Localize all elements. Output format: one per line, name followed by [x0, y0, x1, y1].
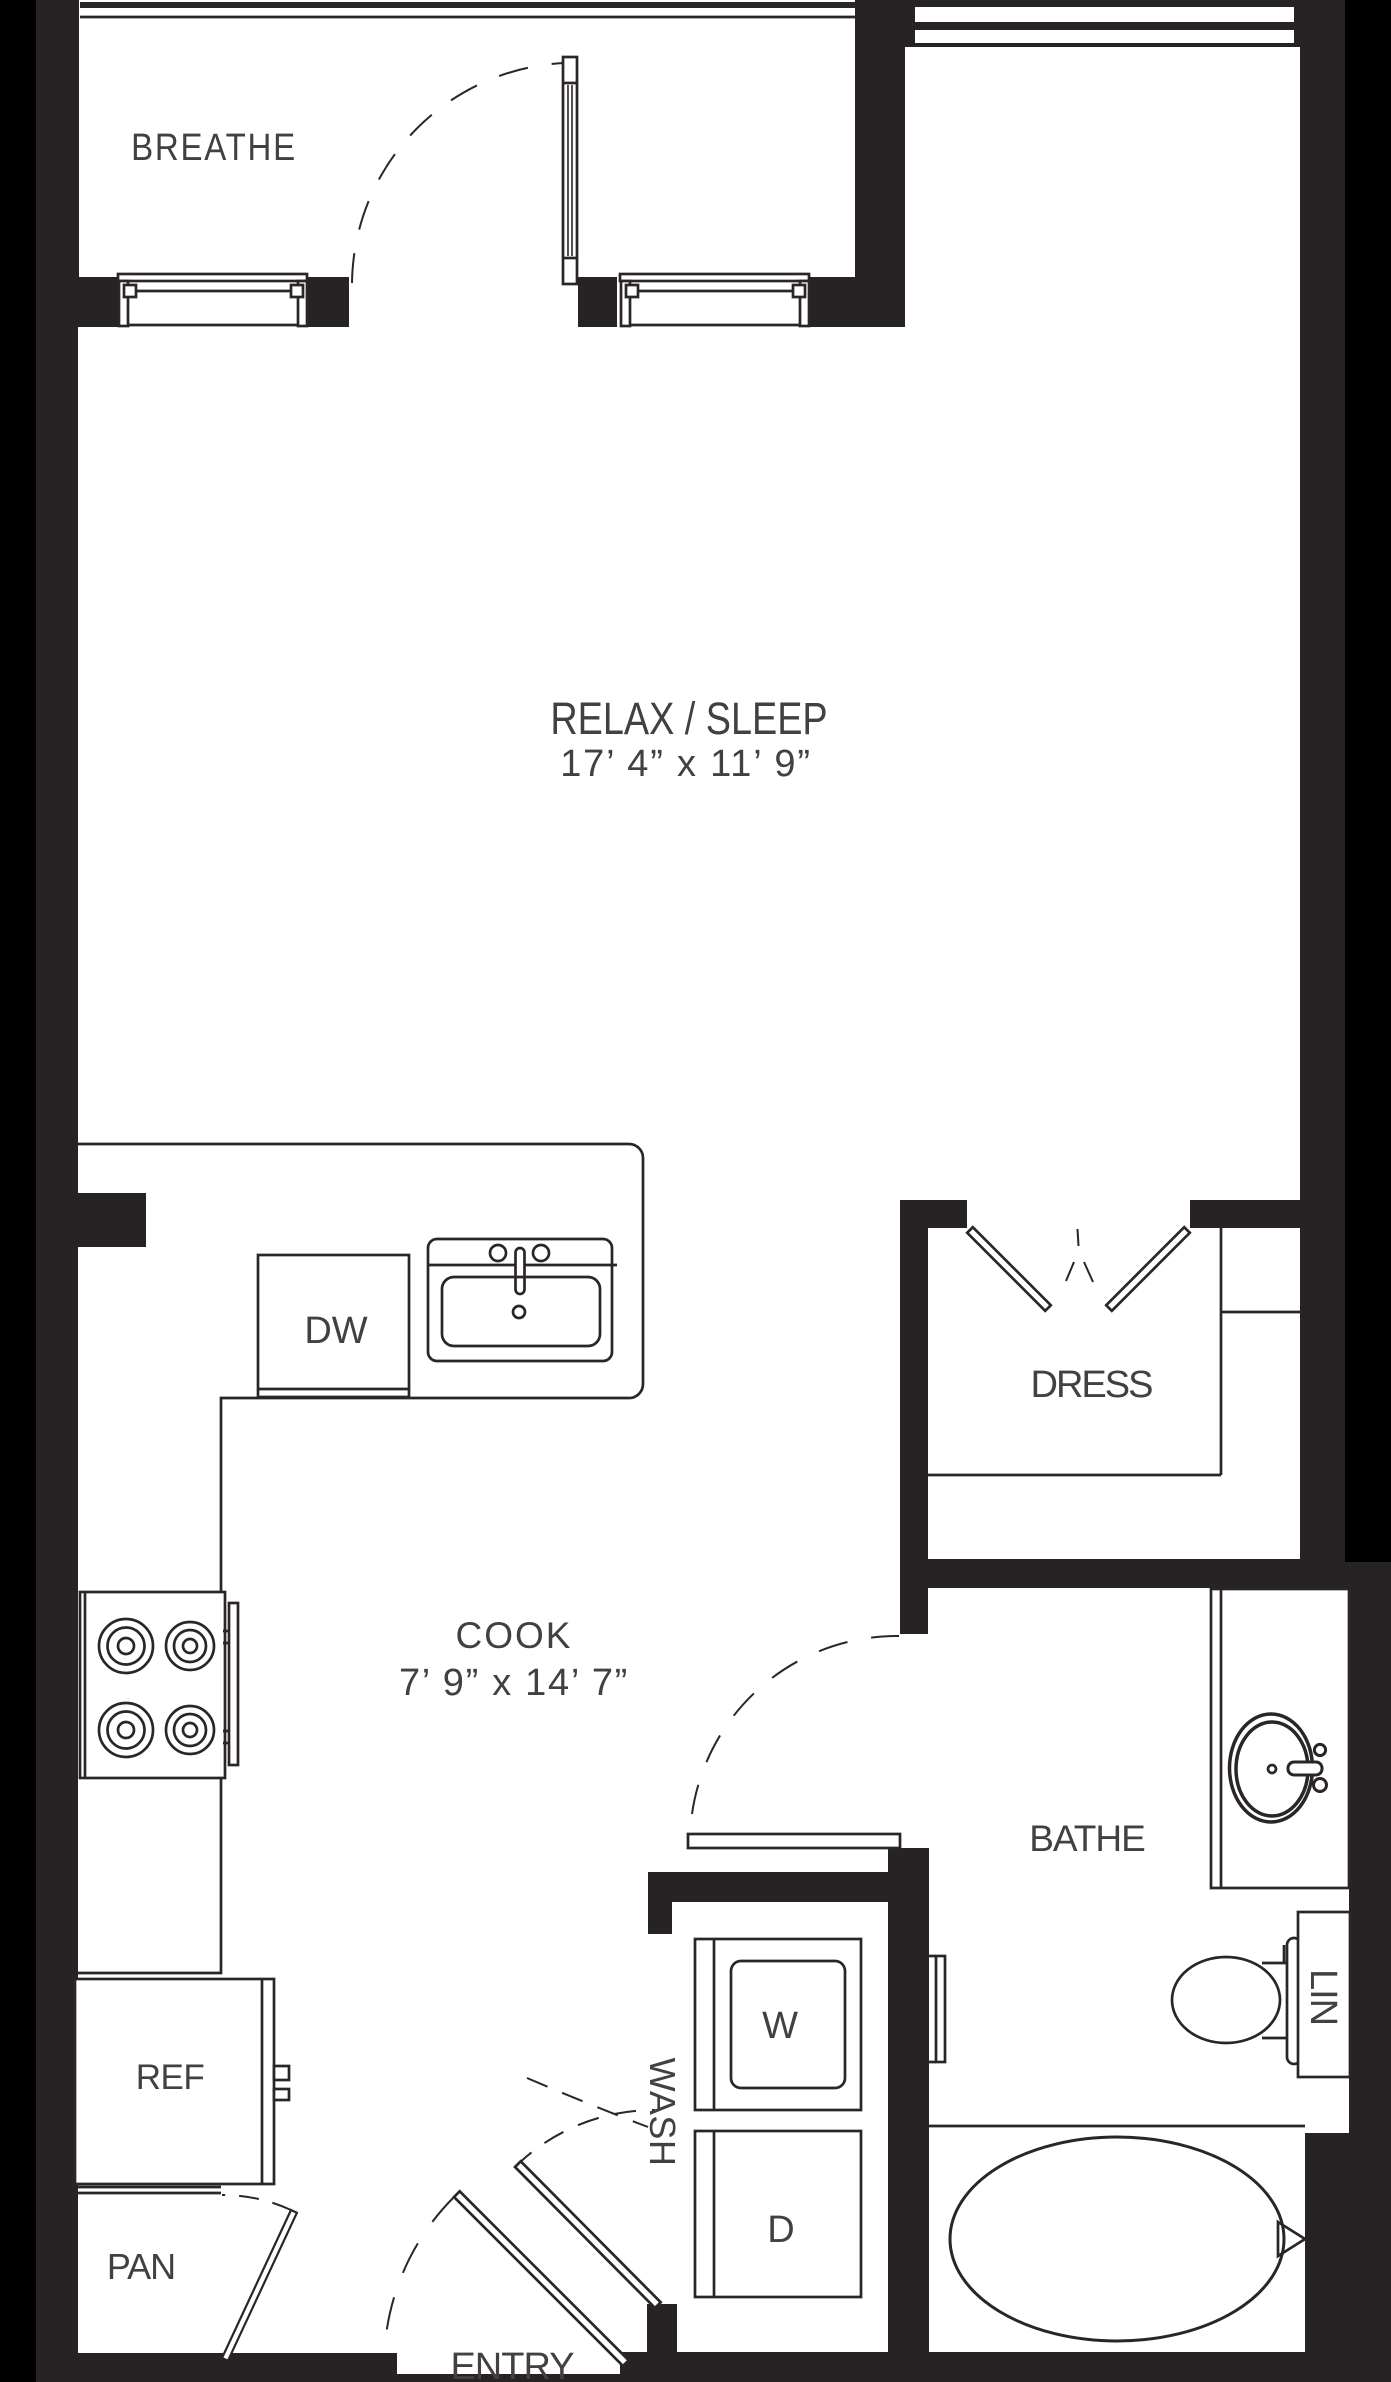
- svg-text:LIN: LIN: [1302, 1969, 1344, 2025]
- svg-text:7’ 9” x 14’ 7”: 7’ 9” x 14’ 7”: [399, 1662, 629, 1704]
- svg-text:W: W: [762, 2005, 798, 2047]
- svg-text:REF: REF: [136, 2058, 205, 2097]
- svg-text:DW: DW: [304, 1310, 367, 1352]
- svg-text:PAN: PAN: [107, 2246, 175, 2287]
- svg-text:RELAX / SLEEP: RELAX / SLEEP: [550, 693, 827, 744]
- svg-text:WASH: WASH: [642, 2058, 683, 2167]
- svg-text:ENTRY: ENTRY: [450, 2346, 574, 2382]
- svg-text:DRESS: DRESS: [1031, 1364, 1153, 1406]
- svg-text:BREATHE: BREATHE: [131, 126, 297, 169]
- svg-text:D: D: [767, 2209, 794, 2251]
- svg-text:COOK: COOK: [456, 1615, 573, 1656]
- svg-text:BATHE: BATHE: [1029, 1818, 1145, 1859]
- svg-text:17’ 4” x 11’ 9”: 17’ 4” x 11’ 9”: [560, 743, 812, 785]
